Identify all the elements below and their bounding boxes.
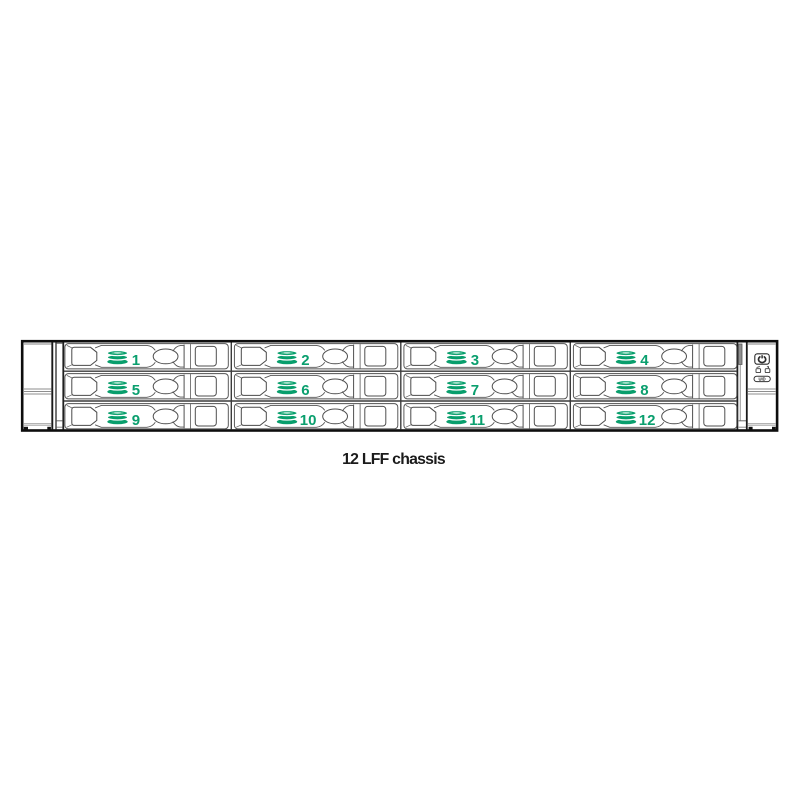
svg-text:UID: UID xyxy=(758,377,765,382)
svg-text:8: 8 xyxy=(640,382,648,399)
svg-text:11: 11 xyxy=(469,412,485,429)
svg-text:4: 4 xyxy=(640,352,649,369)
svg-text:1: 1 xyxy=(132,352,140,369)
svg-text:5: 5 xyxy=(132,382,140,399)
svg-text:9: 9 xyxy=(132,412,140,429)
svg-text:2: 2 xyxy=(301,352,309,369)
svg-text:10: 10 xyxy=(300,412,317,429)
svg-text:7: 7 xyxy=(471,382,479,399)
svg-text:3: 3 xyxy=(471,352,479,369)
svg-text:12: 12 xyxy=(639,412,656,429)
svg-text:6: 6 xyxy=(301,382,309,399)
svg-text:12 LFF chassis: 12 LFF chassis xyxy=(342,451,446,468)
